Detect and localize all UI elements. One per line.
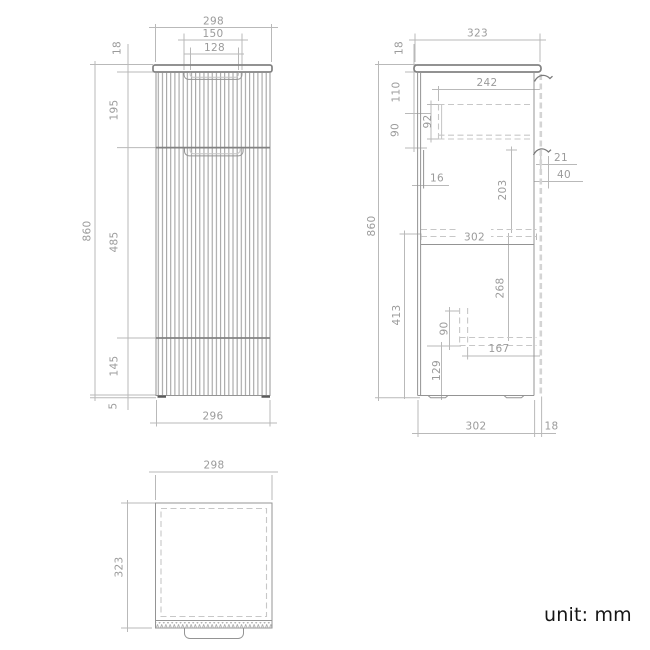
dim-front-width-bottom: 296: [203, 411, 224, 423]
dim-side-front-panel-thickness: 18: [545, 421, 559, 433]
dim-side-upper-cavity-height: 203: [497, 180, 509, 201]
dim-side-countertop-thickness: 18: [394, 41, 406, 55]
dim-side-back-clearance: 16: [430, 173, 444, 185]
top-view: 298 323: [114, 460, 279, 639]
dim-side-lower-section-height: 413: [391, 305, 403, 326]
dim-front-handle-inner: 128: [204, 42, 225, 54]
technical-drawing: 298 150 128 18 195 485 145 5 860 296 323: [0, 0, 650, 650]
top-extension-lines: [121, 475, 272, 628]
dim-side-plinth-zone-height: 129: [431, 360, 443, 381]
dim-top-depth: 323: [114, 557, 126, 578]
dim-side-bracket-depth: 167: [489, 343, 510, 355]
dim-front-drawer-height: 195: [109, 100, 121, 121]
dim-front-plinth-height: 5: [108, 403, 120, 410]
dim-side-depth-bottom: 302: [466, 421, 487, 433]
dim-side-handle-lip-depth: 21: [554, 152, 568, 164]
dim-front-door-height: 485: [109, 232, 121, 253]
front-countertop: [153, 65, 272, 72]
side-hidden-drawer-box: [439, 105, 535, 140]
front-fluted-panel: [157, 73, 270, 396]
dim-front-lower-panel-height: 145: [109, 356, 121, 377]
dim-side-depth-top: 323: [467, 28, 488, 40]
dim-side-drawer-box-height: 92: [422, 115, 434, 129]
dim-side-bracket-height: 90: [439, 322, 451, 336]
top-handle-profile: [185, 628, 244, 639]
dim-side-lower-cavity-height: 268: [495, 278, 507, 299]
top-dimension-lines: [128, 472, 279, 632]
dim-side-handle-recess-depth: 40: [557, 169, 571, 181]
side-handle-lip-top: [535, 75, 553, 81]
side-hidden-bracket: [460, 308, 537, 346]
dim-front-countertop-thickness: 18: [112, 41, 124, 55]
technical-drawing-page: 298 150 128 18 195 485 145 5 860 296 323: [0, 0, 650, 650]
side-view: 323 18 110 90 242 92 16 21 40 203 302 26…: [366, 28, 583, 438]
dim-side-upper-clearance: 90: [390, 123, 402, 137]
dim-front-total-height: 860: [82, 221, 94, 242]
dim-side-total-height: 860: [366, 216, 378, 237]
dim-side-internal-depth: 302: [464, 232, 485, 244]
unit-note: unit: mm: [544, 604, 632, 626]
top-body-outline: [156, 503, 273, 628]
dim-front-width-top: 298: [203, 16, 224, 28]
dim-side-drawer-depth: 242: [477, 77, 498, 89]
dim-front-handle-outer: 150: [203, 28, 224, 40]
top-hidden-inner-edge: [161, 509, 267, 617]
dim-top-width: 298: [204, 460, 225, 472]
side-handle-lip-middle: [534, 149, 552, 155]
front-view: 298 150 128 18 195 485 145 5 860 296: [82, 16, 279, 427]
side-countertop: [414, 65, 541, 72]
dim-side-top-offset: 110: [391, 82, 403, 103]
top-fluting-zigzag: [156, 622, 272, 628]
